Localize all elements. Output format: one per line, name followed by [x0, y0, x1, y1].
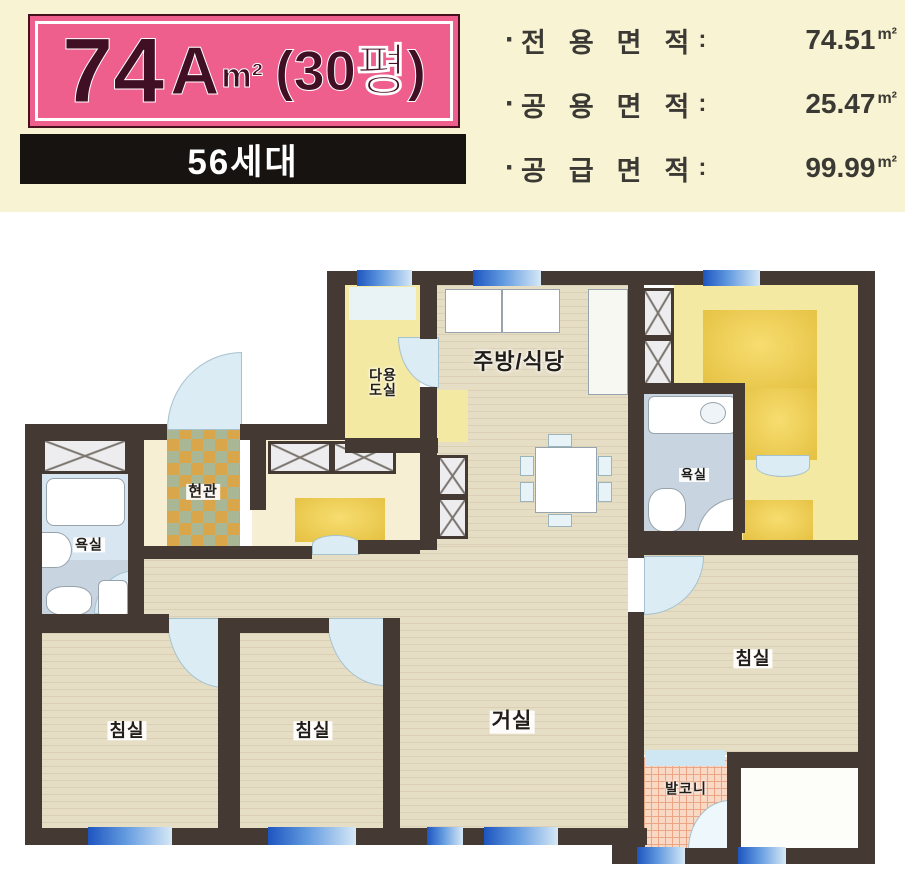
dining-chair — [548, 434, 572, 447]
utility-window-sill — [349, 287, 416, 320]
kitchen-counter-right — [502, 289, 560, 333]
dressing-gold-mat-right — [740, 388, 817, 460]
wall — [644, 383, 740, 394]
dining-chair — [548, 514, 572, 527]
kitchen-side-alcove — [437, 390, 468, 442]
window — [484, 827, 558, 845]
wall — [218, 618, 240, 845]
bathroom-left-closet — [42, 438, 128, 474]
nook-closet-a — [268, 441, 332, 474]
toilet-right — [648, 488, 686, 532]
wall — [358, 540, 420, 554]
window — [637, 847, 685, 864]
center-closet-a — [642, 288, 674, 338]
entrance-door-swing — [167, 352, 242, 430]
wall — [628, 546, 644, 558]
wall — [143, 546, 312, 559]
wall — [25, 424, 167, 440]
wall — [644, 540, 858, 555]
storage-room-floor — [741, 768, 858, 852]
bathtub-left — [46, 478, 125, 526]
wall — [25, 614, 169, 633]
nook-door-swing — [312, 535, 360, 555]
wall — [383, 618, 400, 830]
wall — [25, 424, 42, 845]
window — [357, 270, 412, 286]
vanity-left — [98, 580, 128, 618]
kitchen-side-closet-a — [437, 455, 468, 497]
room-label-balcony: 발코니 — [663, 781, 709, 796]
wall — [327, 271, 345, 440]
wall — [628, 271, 644, 546]
wall — [628, 612, 644, 852]
room-label-bedroom-right: 침실 — [733, 649, 772, 668]
sink-left — [40, 532, 72, 568]
room-label-bath-right: 욕실 — [679, 468, 709, 482]
dressing-gold-mat-top — [703, 310, 817, 388]
room-label-kitchen: 주방/식당 — [471, 350, 567, 374]
dining-chair — [520, 456, 534, 476]
dining-table — [535, 447, 597, 513]
kitchen-appliance-column — [588, 289, 628, 395]
balcony-top-sill — [645, 750, 725, 766]
wall — [250, 424, 266, 510]
kitchen-counter-left — [445, 289, 502, 333]
wall — [420, 448, 437, 550]
window — [703, 270, 760, 286]
window — [738, 847, 786, 864]
kitchen-side-closet-b — [437, 497, 468, 539]
room-label-utility: 다용도실 — [361, 368, 405, 398]
basin-right — [700, 402, 726, 424]
window — [268, 827, 356, 845]
floor-plan: 다용도실 주방/식당 현관 욕실 욕실 침실 침실 침실 거실 발코니 — [0, 0, 905, 889]
wall — [733, 383, 745, 533]
window — [88, 827, 172, 845]
living-room-floor — [400, 560, 628, 828]
scanned-floor-plan-page: { "header": { "badge": {"size": "74", "t… — [0, 0, 905, 889]
room-label-bath-left: 욕실 — [73, 537, 105, 552]
wall — [420, 271, 437, 339]
dining-chair — [520, 482, 534, 502]
window — [473, 270, 541, 286]
wall — [727, 752, 741, 854]
bedroom-right-alcove — [743, 500, 813, 542]
dining-chair — [598, 456, 612, 476]
wall — [240, 618, 329, 633]
dining-chair — [598, 482, 612, 502]
room-label-entrance: 현관 — [186, 484, 220, 500]
wall — [128, 438, 144, 620]
entrance-side-strip — [143, 438, 167, 546]
wall — [858, 271, 875, 864]
window — [427, 827, 463, 845]
toilet-left — [46, 586, 92, 616]
wall — [727, 752, 875, 768]
room-label-bedroom-middle: 침실 — [293, 721, 332, 740]
room-label-bedroom-left: 침실 — [107, 721, 146, 740]
center-closet-b — [642, 338, 674, 387]
room-label-living: 거실 — [490, 711, 535, 734]
bathroom-right-door-swing — [756, 455, 810, 477]
